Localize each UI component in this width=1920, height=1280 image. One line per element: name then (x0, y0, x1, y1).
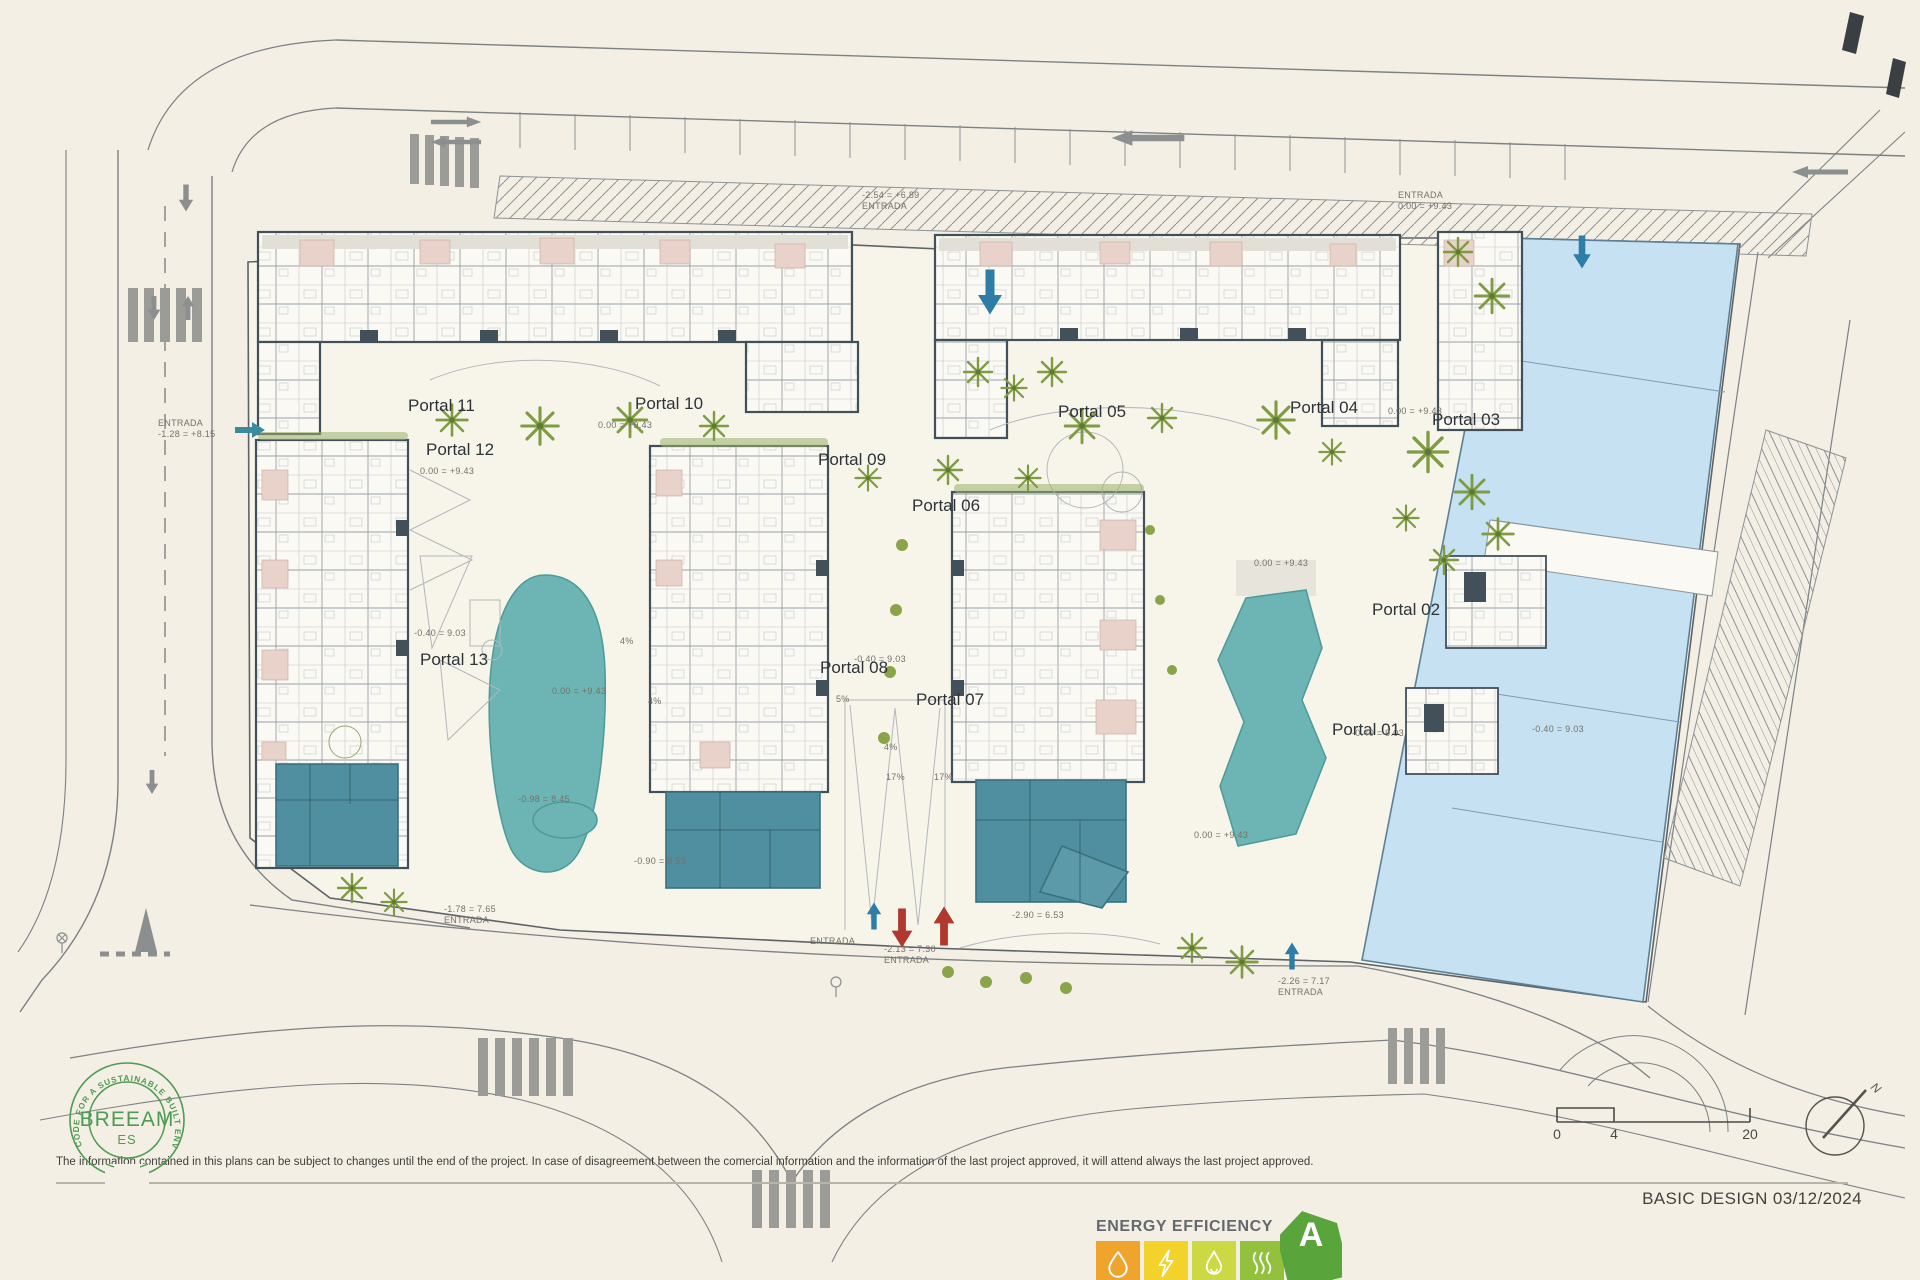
footer-divider (56, 1182, 1848, 1184)
street-lamp-icon (57, 933, 841, 997)
site-plan-drawing (0, 0, 1920, 1280)
disclaimer-text: The information contained in this plans … (56, 1156, 1313, 1168)
parking-stall-ticks (520, 112, 1565, 180)
crosswalk-bottom-left (478, 1038, 573, 1096)
energy-rating-badge: A (1280, 1210, 1342, 1280)
yield-triangle (135, 908, 157, 952)
breeam-logo: CODE FOR A SUSTAINABLE BUILT ENVIRONMENT… (52, 1038, 202, 1188)
flame-icon (1192, 1241, 1236, 1280)
crosswalk-bottom-right (1388, 1028, 1445, 1084)
lightning-icon (1144, 1241, 1188, 1280)
title-block-text: BASIC DESIGN 03/12/2024 (1642, 1189, 1862, 1209)
crosswalk-top-left (410, 134, 479, 188)
scale-tick: 4 (1610, 1126, 1618, 1142)
breeam-region: ES (117, 1132, 136, 1147)
scale-bar: 0 4 20 (1552, 1098, 1762, 1142)
crosswalk-bottom-center (752, 1170, 830, 1228)
energy-efficiency-label: ENERGY EFFICIENCY (1096, 1210, 1342, 1280)
heat-waves-icon (1240, 1241, 1284, 1280)
north-label: N (1868, 1080, 1884, 1096)
site-plan-sheet: Portal 11Portal 10Portal 05Portal 04Port… (0, 0, 1920, 1280)
corner-mark (1842, 12, 1864, 54)
energy-rating-letter: A (1280, 1216, 1342, 1255)
water-drop-icon (1096, 1241, 1140, 1280)
breeam-name: BREEAM (80, 1108, 175, 1131)
scale-tick: 20 (1742, 1126, 1758, 1142)
north-compass: N (1790, 1074, 1886, 1170)
corner-mark (1886, 58, 1906, 98)
crosswalk-left-road (128, 288, 202, 342)
scale-tick: 0 (1553, 1126, 1561, 1142)
energy-label-title: ENERGY EFFICIENCY (1096, 1218, 1274, 1236)
